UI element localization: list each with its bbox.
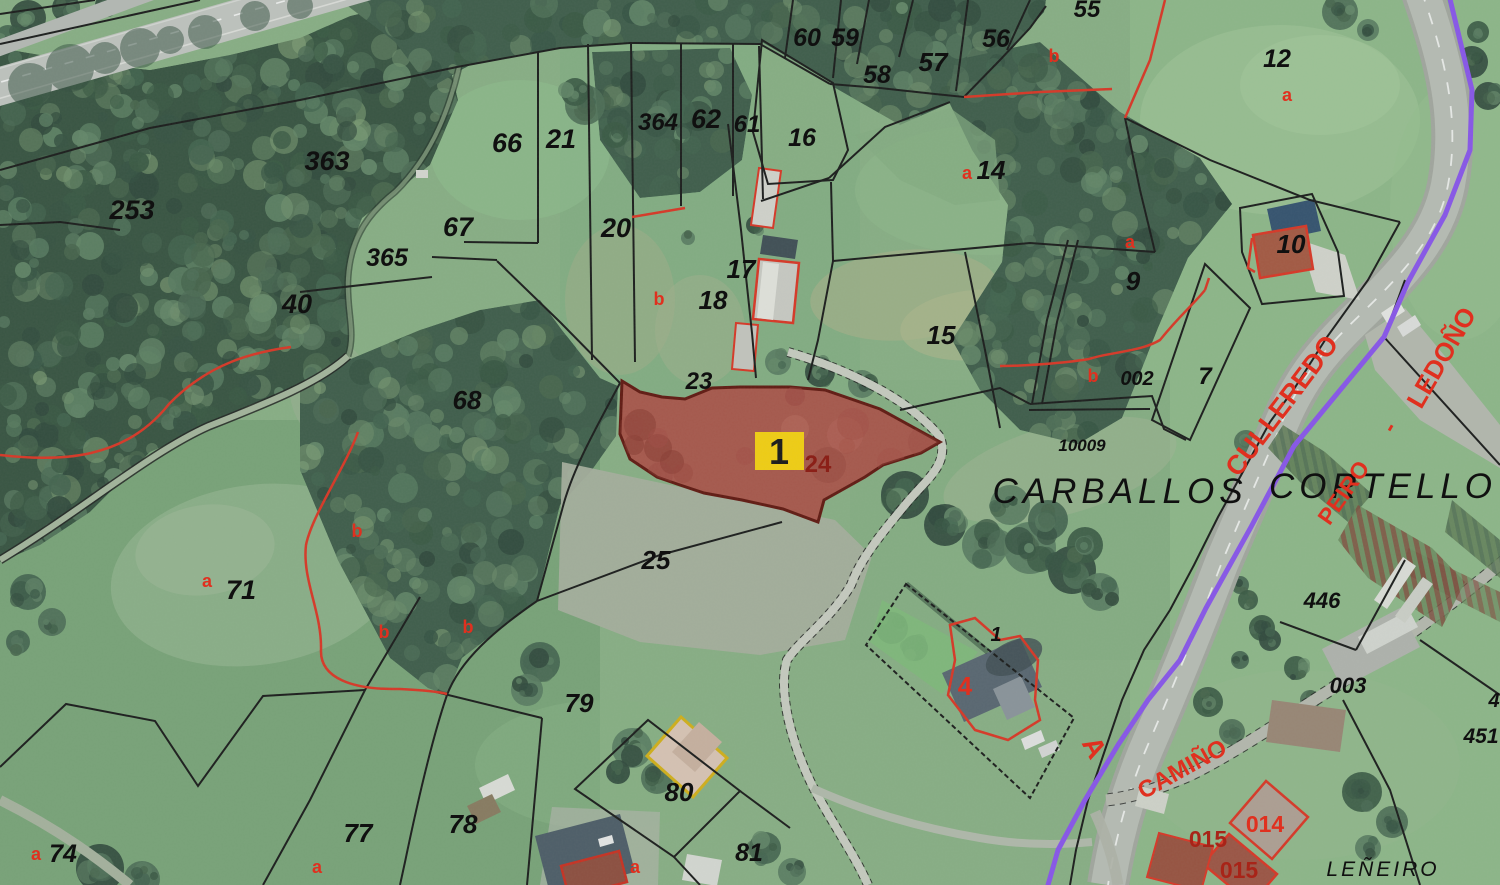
svg-text:81: 81 <box>735 839 763 867</box>
svg-text:66: 66 <box>492 128 523 158</box>
svg-text:9: 9 <box>1126 266 1141 296</box>
svg-text:80: 80 <box>665 777 694 807</box>
svg-text:74: 74 <box>49 840 77 868</box>
svg-text:14: 14 <box>977 155 1006 185</box>
svg-text:23: 23 <box>685 368 713 395</box>
svg-text:365: 365 <box>366 244 409 272</box>
svg-text:LEÑEIRO: LEÑEIRO <box>1326 857 1439 881</box>
svg-text:CARBALLOS: CARBALLOS <box>992 472 1247 511</box>
svg-text:4: 4 <box>958 671 973 701</box>
svg-text:451: 451 <box>1462 725 1498 748</box>
svg-text:a: a <box>31 844 42 864</box>
svg-text:17: 17 <box>727 254 757 284</box>
svg-text:a: a <box>1125 232 1136 252</box>
svg-text:10009: 10009 <box>1058 436 1106 455</box>
svg-text:CORTELLO: CORTELLO <box>1269 467 1497 506</box>
svg-text:59: 59 <box>831 24 859 52</box>
svg-text:a: a <box>312 857 323 877</box>
svg-text:68: 68 <box>453 385 482 415</box>
svg-text:014: 014 <box>1246 811 1285 837</box>
svg-text:363: 363 <box>304 146 349 176</box>
svg-text:015: 015 <box>1220 857 1259 883</box>
svg-text:58: 58 <box>863 61 891 89</box>
svg-text:60: 60 <box>793 24 821 52</box>
svg-text:21: 21 <box>545 124 576 154</box>
svg-text:57: 57 <box>919 47 949 77</box>
svg-text:a: a <box>1282 85 1293 105</box>
svg-text:77: 77 <box>344 818 374 848</box>
svg-text:40: 40 <box>281 289 312 319</box>
svg-text:15: 15 <box>927 320 956 350</box>
svg-text:446: 446 <box>1303 588 1341 613</box>
svg-text:a: a <box>630 857 641 877</box>
svg-text:67: 67 <box>443 212 475 242</box>
svg-text:b: b <box>379 622 390 642</box>
svg-text:20: 20 <box>600 213 631 243</box>
svg-text:16: 16 <box>788 124 817 152</box>
svg-text:1: 1 <box>990 624 1001 646</box>
svg-text:b: b <box>352 521 363 541</box>
svg-text:7: 7 <box>1198 363 1213 390</box>
svg-text:55: 55 <box>1074 0 1101 23</box>
svg-text:364: 364 <box>638 109 678 136</box>
svg-text:a: a <box>202 571 213 591</box>
svg-text:61: 61 <box>734 111 761 138</box>
svg-text:b: b <box>654 289 665 309</box>
svg-text:78: 78 <box>449 809 478 839</box>
svg-text:56: 56 <box>982 25 1011 53</box>
svg-text:002: 002 <box>1120 368 1153 390</box>
svg-text:24: 24 <box>805 451 832 478</box>
svg-text:12: 12 <box>1263 45 1291 73</box>
svg-text:b: b <box>1088 366 1099 386</box>
svg-text:71: 71 <box>226 575 256 605</box>
svg-text:62: 62 <box>691 104 721 134</box>
svg-text:18: 18 <box>699 285 728 315</box>
svg-text:a: a <box>962 163 973 183</box>
svg-text:253: 253 <box>108 195 154 225</box>
svg-text:b: b <box>463 617 474 637</box>
svg-text:25: 25 <box>641 545 671 575</box>
svg-text:b: b <box>1049 46 1060 66</box>
svg-text:003: 003 <box>1330 673 1367 698</box>
svg-text:10: 10 <box>1277 229 1306 259</box>
svg-text:015: 015 <box>1189 826 1228 852</box>
svg-text:4: 4 <box>1487 690 1499 712</box>
svg-text:79: 79 <box>565 688 594 718</box>
